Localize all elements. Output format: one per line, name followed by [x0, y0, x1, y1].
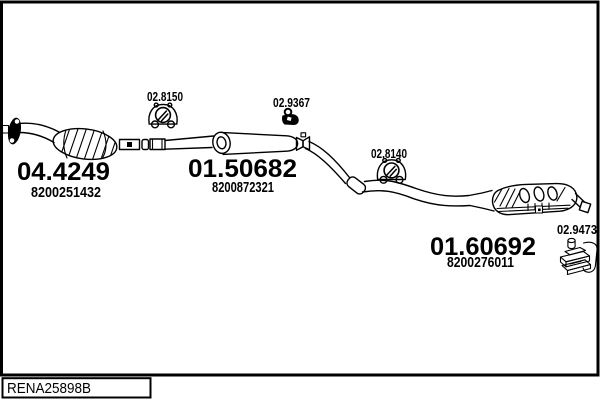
diagram-canvas: 02.8150 02.9367 02.8140 02.9473 04.4249 …: [0, 0, 600, 400]
part-code-catalytic: 04.4249: [17, 158, 110, 186]
flex-connector-art: [120, 136, 214, 150]
exhaust-parts-diagram: 02.8150 02.9367 02.8140 02.9473 04.4249 …: [0, 0, 600, 400]
rubber-hanger-icon: [149, 103, 177, 128]
pipe-clamp-icon: [282, 109, 299, 125]
label-rear-bracket: 02.9473: [557, 222, 597, 237]
label-front-hanger: 02.8150: [147, 89, 183, 104]
oem-number-catalytic: 8200251432: [31, 185, 101, 201]
oem-number-rear-silencer: 8200276011: [447, 255, 514, 271]
front-flange-art: [3, 117, 60, 146]
rear-pipe-art: [345, 175, 494, 211]
label-rear-hanger: 02.8140: [371, 146, 407, 161]
mount-bracket-icon: [561, 238, 598, 274]
rear-silencer-art: [492, 184, 576, 215]
label-mid-clamp: 02.9367: [273, 95, 310, 110]
rubber-hanger-icon: [377, 159, 405, 184]
tail-pipe-art: [572, 194, 591, 213]
footer-drawing-code: RENA25898B: [7, 381, 91, 397]
oem-number-centre-silencer: 8200872321: [212, 180, 274, 196]
part-code-centre-silencer: 01.50682: [188, 155, 297, 183]
